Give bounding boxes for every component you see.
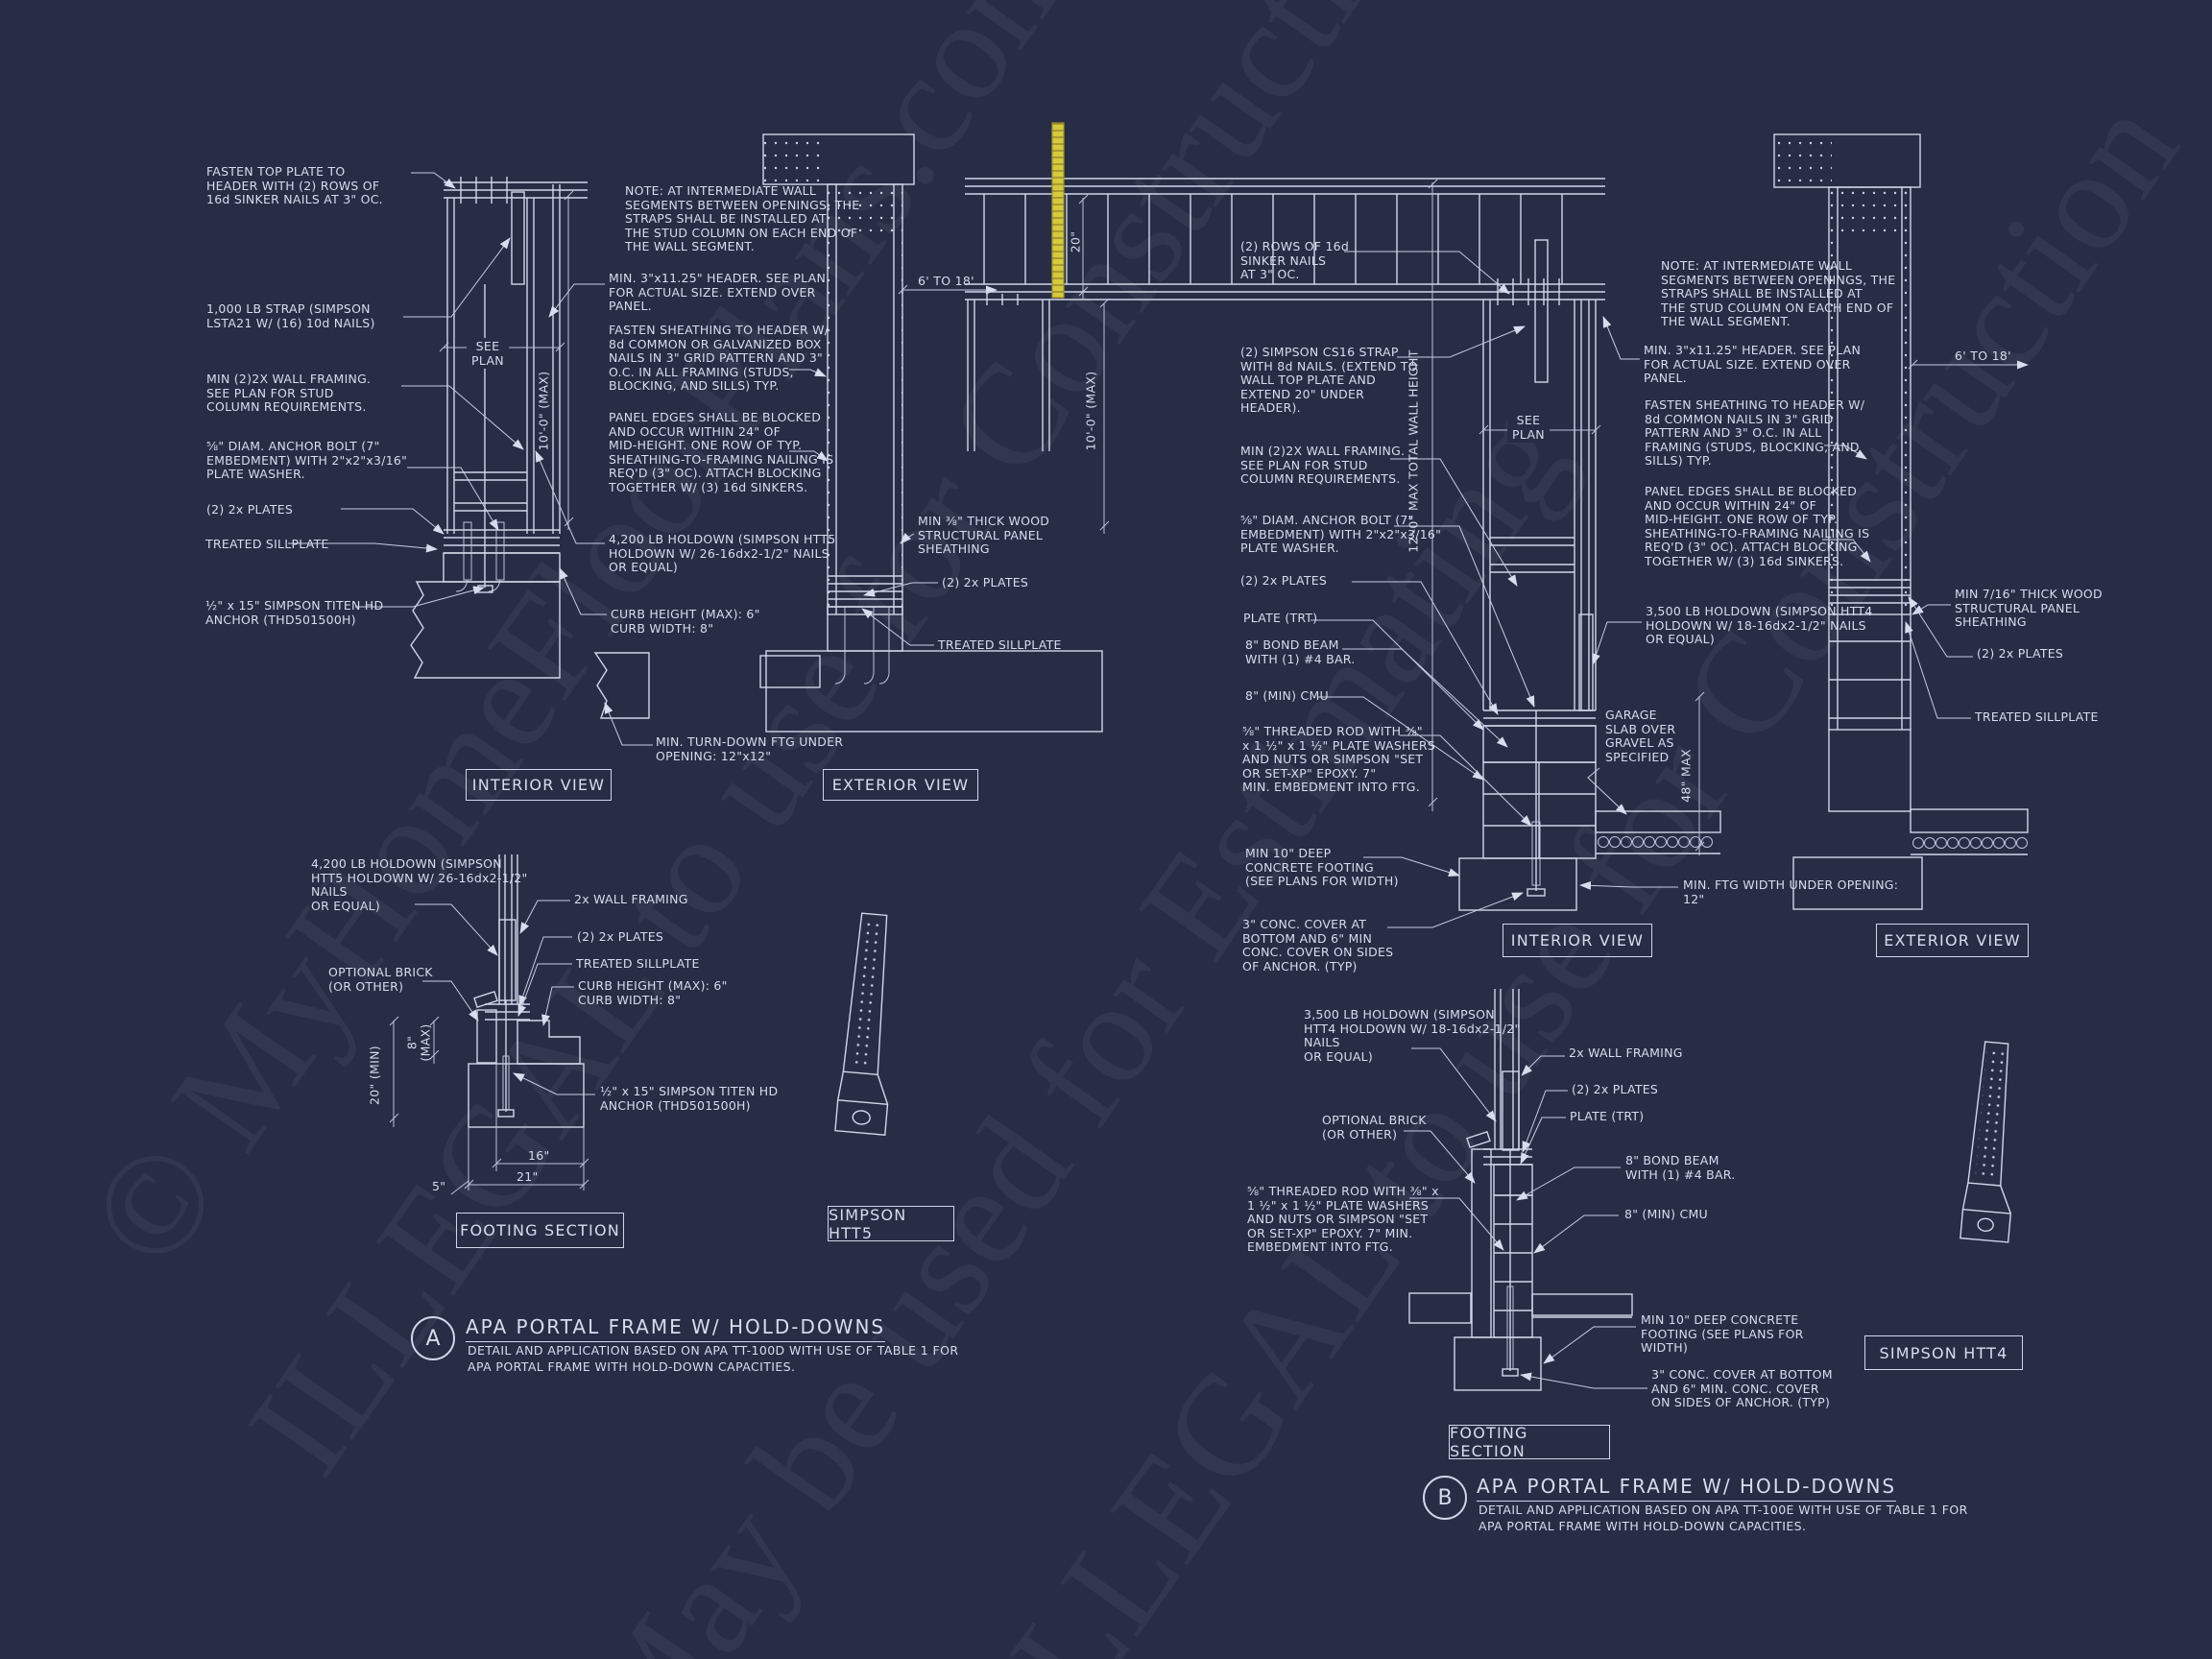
note-foot-holdown-a: 4,200 LB HOLDOWN (SIMPSON HTT5 HOLDOWN W…: [311, 857, 528, 913]
simpson-htt5-drawing: [835, 913, 904, 1136]
note-bond-beam-b: 8" BOND BEAM WITH (1) #4 BAR.: [1245, 638, 1355, 666]
note-foot-plates-b: (2) 2x PLATES: [1572, 1083, 1658, 1097]
view-title-exterior-a: EXTERIOR VIEW: [823, 769, 978, 801]
note-foot-curb-a: CURB HEIGHT (MAX): 6" CURB WIDTH: 8": [578, 979, 728, 1007]
note-foot-rod-b: ⅝" THREADED ROD WITH ⅜" x 1 ½" x 1 ½" PL…: [1247, 1185, 1439, 1255]
note-cmu-b: 8" (MIN) CMU: [1245, 689, 1329, 704]
dim-21in: 21": [517, 1169, 539, 1184]
note-wall-framing-b: MIN (2)2X WALL FRAMING. SEE PLAN FOR STU…: [1240, 445, 1405, 487]
note-plate-trt-b: PLATE (TRT): [1243, 612, 1317, 626]
note-ext-plates-a: (2) 2x PLATES: [942, 576, 1028, 590]
dim-see-plan-b: SEE PLAN: [1507, 412, 1550, 443]
dim-footing-depth-a: 20" (MIN): [368, 1046, 382, 1105]
view-title-exterior-b: EXTERIOR VIEW: [1876, 924, 2029, 957]
view-title-footing-b: FOOTING SECTION: [1449, 1425, 1610, 1459]
note-sinker-rows-b: (2) ROWS OF 16d SINKER NAILS AT 3" OC.: [1240, 240, 1349, 282]
view-title-interior-b: INTERIOR VIEW: [1503, 924, 1652, 957]
note-ext-sillplate-b: TREATED SILLPLATE: [1975, 710, 2099, 725]
callout-a: A: [411, 1316, 455, 1360]
note-foot-framing-a: 2x WALL FRAMING: [574, 893, 688, 907]
detail-a-subheading: DETAIL AND APPLICATION BASED ON APA TT-1…: [468, 1343, 958, 1376]
note-holdown-a: 4,200 LB HOLDOWN (SIMPSON HTT5 HOLDOWN W…: [609, 533, 835, 575]
note-fasten-top-plate: FASTEN TOP PLATE TO HEADER WITH (2) ROWS…: [206, 165, 383, 207]
note-foot-titen-a: ½" x 15" SIMPSON TITEN HD ANCHOR (THD501…: [600, 1085, 778, 1113]
note-optional-brick-b: OPTIONAL BRICK (OR OTHER): [1322, 1114, 1427, 1142]
note-curb-a: CURB HEIGHT (MAX): 6" CURB WIDTH: 8": [611, 608, 760, 636]
dim-slab-max-b: 48" MAX: [1679, 749, 1694, 803]
note-ext-plates-b: (2) 2x PLATES: [1977, 647, 2063, 661]
dim-curb-height-a: 8" (MAX): [405, 1023, 432, 1061]
note-garage-slab-b: GARAGE SLAB OVER GRAVEL AS SPECIFIED: [1605, 709, 1675, 764]
dim-total-wall-height-b: 12'-0" MAX TOTAL WALL HEIGHT: [1407, 349, 1421, 552]
note-titen-anchor-a: ½" x 15" SIMPSON TITEN HD ANCHOR (THD501…: [205, 599, 383, 627]
dim-strap-extend-b: 20": [1069, 231, 1083, 253]
note-foot-plate-trt-b: PLATE (TRT): [1570, 1110, 1644, 1124]
simpson-htt4-drawing: [1960, 1041, 2026, 1242]
note-threaded-rod-b: ⅝" THREADED ROD WITH ⅜" x 1 ½" x 1 ½" PL…: [1242, 725, 1435, 795]
note-panel-edges-a: PANEL EDGES SHALL BE BLOCKED AND OCCUR W…: [609, 411, 833, 494]
note-plates-a: (2) 2x PLATES: [206, 503, 293, 517]
detail-a-heading: APA PORTAL FRAME W/ HOLD-DOWNS: [466, 1315, 885, 1342]
dim-see-plan-a: SEE PLAN: [467, 338, 509, 369]
note-header-b: MIN. 3"x11.25" HEADER. SEE PLAN FOR ACTU…: [1644, 344, 1861, 386]
dim-wall-height-b: 10'-0" (MAX): [1084, 372, 1098, 451]
note-optional-brick-a: OPTIONAL BRICK (OR OTHER): [328, 966, 433, 994]
dim-opening-a: 6' TO 18': [918, 274, 974, 288]
note-sheathing-b: MIN 7/16" THICK WOOD STRUCTURAL PANEL SH…: [1955, 588, 2103, 630]
note-holdown-b: 3,500 LB HOLDOWN (SIMPSON HTT4 HOLDOWN W…: [1646, 605, 1872, 647]
note-foot-holdown-b: 3,500 LB HOLDOWN (SIMPSON HTT4 HOLDOWN W…: [1304, 1008, 1521, 1064]
callout-b: B: [1423, 1476, 1467, 1520]
view-title-interior-a: INTERIOR VIEW: [466, 769, 612, 801]
dim-5in: 5": [432, 1179, 445, 1193]
note-sillplate-a: TREATED SILLPLATE: [205, 538, 329, 552]
view-title-footing-a: FOOTING SECTION: [456, 1213, 624, 1248]
note-foot-plates-a: (2) 2x PLATES: [577, 930, 663, 945]
dim-wall-height-a: 10'-0" (MAX): [537, 372, 551, 451]
note-intermediate-wall-a: NOTE: AT INTERMEDIATE WALL SEGMENTS BETW…: [625, 184, 859, 254]
note-fasten-sheathing-a: FASTEN SHEATHING TO HEADER W/ 8d COMMON …: [609, 324, 829, 394]
note-header-a: MIN. 3"x11.25" HEADER. SEE PLAN FOR ACTU…: [609, 272, 826, 314]
note-fasten-sheathing-b: FASTEN SHEATHING TO HEADER W/ 8d COMMON …: [1645, 398, 1864, 469]
note-ftg-width-b: MIN. FTG WIDTH UNDER OPENING: 12": [1683, 878, 1898, 906]
dim-16in: 16": [528, 1148, 550, 1163]
view-title-htt4: SIMPSON HTT4: [1864, 1335, 2023, 1370]
dim-opening-b: 6' TO 18': [1955, 349, 2011, 363]
note-ext-sillplate-a: TREATED SILLPLATE: [938, 638, 1062, 653]
note-strap-lsta21: 1,000 LB STRAP (SIMPSON LSTA21 W/ (16) 1…: [206, 302, 375, 330]
note-sheathing-a: MIN ⅜" THICK WOOD STRUCTURAL PANEL SHEAT…: [918, 515, 1049, 557]
note-footing-b: MIN 10" DEEP CONCRETE FOOTING (SEE PLANS…: [1245, 847, 1399, 889]
blueprint-linework: [0, 0, 2212, 1659]
note-foot-cmu-b: 8" (MIN) CMU: [1624, 1208, 1708, 1222]
note-plates-b: (2) 2x PLATES: [1240, 574, 1327, 589]
blueprint-sheet: © MyHomeFloorPlans.com ILLEGAL to use fo…: [0, 0, 2212, 1659]
detail-b-heading: APA PORTAL FRAME W/ HOLD-DOWNS: [1477, 1475, 1896, 1502]
note-wall-framing-a: MIN (2)2X WALL FRAMING. SEE PLAN FOR STU…: [206, 373, 371, 415]
note-anchor-bolt-a: ⅝" DIAM. ANCHOR BOLT (7" EMBEDMENT) WITH…: [206, 440, 407, 482]
note-foot-cover-b: 3" CONC. COVER AT BOTTOM AND 6" MIN. CON…: [1651, 1368, 1833, 1410]
note-foot-bond-beam-b: 8" BOND BEAM WITH (1) #4 BAR.: [1625, 1154, 1735, 1182]
note-panel-edges-b: PANEL EDGES SHALL BE BLOCKED AND OCCUR W…: [1645, 485, 1869, 568]
view-title-htt5: SIMPSON HTT5: [828, 1206, 954, 1241]
note-cs16-strap-b: (2) SIMPSON CS16 STRAP WITH 8d NAILS. (E…: [1240, 346, 1418, 416]
detail-b-subheading: DETAIL AND APPLICATION BASED ON APA TT-1…: [1479, 1503, 1968, 1535]
note-foot-footing-b: MIN 10" DEEP CONCRETE FOOTING (SEE PLANS…: [1641, 1313, 1804, 1356]
note-cover-b: 3" CONC. COVER AT BOTTOM AND 6" MIN CONC…: [1242, 918, 1393, 974]
note-foot-framing-b: 2x WALL FRAMING: [1569, 1046, 1683, 1061]
note-turndown-ftg: MIN. TURN-DOWN FTG UNDER OPENING: 12"x12…: [656, 735, 843, 763]
note-foot-sillplate-a: TREATED SILLPLATE: [576, 957, 700, 972]
note-intermediate-wall-b: NOTE: AT INTERMEDIATE WALL SEGMENTS BETW…: [1661, 259, 1895, 329]
